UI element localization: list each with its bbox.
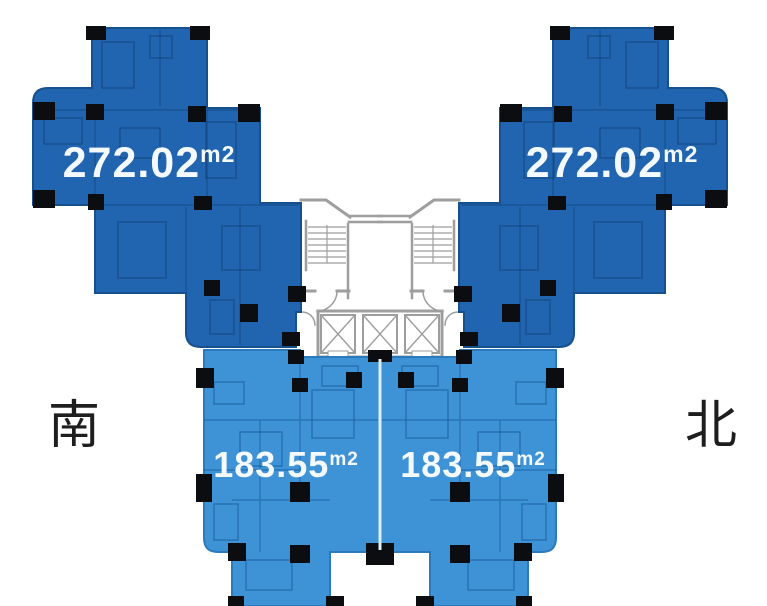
floor-plan-image: 272.02m2 272.02m2 183.55m2 183.55m2 南 北 bbox=[0, 0, 767, 606]
stair-core-left bbox=[301, 200, 382, 325]
area-unit-superscript: m2 bbox=[516, 449, 545, 470]
stair-core-right bbox=[378, 200, 459, 325]
area-value: 272.02 bbox=[63, 139, 201, 187]
area-value: 183.55 bbox=[400, 444, 516, 485]
compass-south-label: 南 bbox=[48, 397, 100, 455]
area-unit-superscript: m2 bbox=[200, 141, 235, 167]
elevator-shaft bbox=[321, 315, 355, 357]
area-value: 272.02 bbox=[526, 139, 664, 187]
floor-plan-canvas: 272.02m2 272.02m2 183.55m2 183.55m2 南 北 bbox=[0, 0, 767, 606]
compass-north-label: 北 bbox=[685, 397, 737, 455]
area-unit-superscript: m2 bbox=[663, 141, 698, 167]
area-unit-superscript: m2 bbox=[329, 449, 358, 470]
staircase-treads bbox=[308, 225, 346, 263]
elevator-shaft bbox=[405, 315, 439, 357]
area-value: 183.55 bbox=[213, 444, 329, 485]
